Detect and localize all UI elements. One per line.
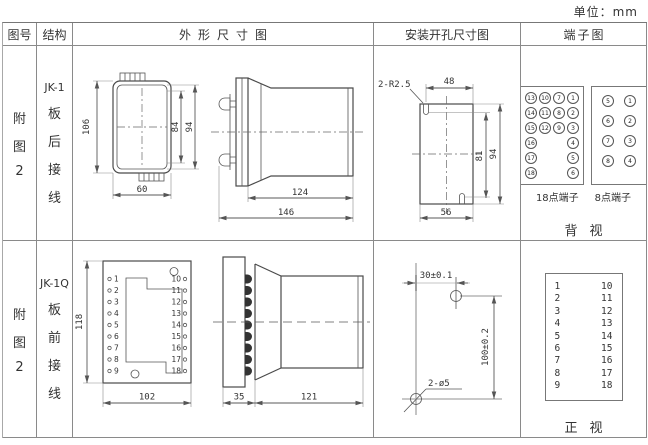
- dim-121: 121: [301, 393, 317, 403]
- svg-text:9: 9: [114, 367, 119, 376]
- svg-text:1: 1: [114, 275, 119, 284]
- dim-124: 124: [292, 188, 308, 198]
- hole-diameter-label: 2-ø5: [428, 379, 450, 389]
- terminal-pin: 7: [602, 135, 614, 147]
- row2-structure: JK-1Q 板 前 接 线: [37, 241, 73, 438]
- terminal-block-18pt: 13 10 7 1 14 11 8 2 15 12 9 3 16: [521, 86, 584, 185]
- fig-no-char: 2: [15, 164, 23, 179]
- label-18pt: 18点端子: [536, 189, 579, 204]
- top-terminal-block: [120, 73, 145, 81]
- terminal-table: 110 211 312 413 514 615 716 817 918: [545, 273, 623, 401]
- structure-char: 板: [48, 299, 61, 318]
- row2-terminal-cell: 110 211 312 413 514 615 716 817 918 正视: [521, 241, 647, 438]
- terminal-pin: 15: [525, 122, 537, 134]
- terminal-pin: 2: [567, 107, 579, 119]
- mounting-hole: [131, 370, 139, 378]
- structure-char: 接: [48, 355, 61, 374]
- terminal-pin: 10: [539, 92, 551, 104]
- bottom-terminal-block: [139, 173, 164, 181]
- header-fig-no: 图号: [3, 23, 37, 46]
- dim-102: 102: [139, 393, 155, 403]
- terminal-pin: 1: [624, 95, 636, 107]
- front-terminal-bumps: [245, 275, 252, 376]
- terminal-block-8pt: 5 1 6 2 7 3 8 4: [591, 86, 647, 185]
- slot-radius-label: 2-R2.5: [378, 80, 411, 90]
- terminal-pin: 12: [539, 122, 551, 134]
- jk1q-mounting-drawing: 30±0.1 100±0.2 2-ø5: [374, 241, 520, 437]
- jk1-outline-drawing: 106 84 94 60: [73, 46, 373, 240]
- structure-char: 前: [48, 327, 61, 346]
- fig-no-char: 附: [13, 304, 26, 323]
- header-terminal: 端子图: [521, 23, 647, 46]
- svg-text:15: 15: [171, 332, 181, 341]
- dim-94: 94: [185, 122, 195, 133]
- rear-view-label: 背视: [552, 220, 614, 239]
- terminal-pin: 3: [567, 122, 579, 134]
- top-slot: [424, 104, 429, 115]
- structure-char: 接: [48, 159, 61, 178]
- svg-text:16: 16: [171, 344, 181, 353]
- terminal-pin: 3: [624, 135, 636, 147]
- row1-structure: JK-1 板 后 接 线: [37, 46, 73, 241]
- svg-text:6: 6: [114, 332, 119, 341]
- terminal-pin: 14: [525, 107, 537, 119]
- svg-text:7: 7: [114, 344, 119, 353]
- jk1q-side-view: 35 121: [213, 257, 370, 407]
- fig-no-char: 图: [13, 136, 26, 155]
- row2-mounting-cell: 30±0.1 100±0.2 2-ø5: [374, 241, 521, 438]
- dim-106: 106: [82, 119, 92, 135]
- svg-text:2: 2: [114, 286, 119, 295]
- svg-text:12: 12: [171, 298, 181, 307]
- model-name: JK-1Q: [40, 277, 69, 290]
- svg-text:4: 4: [114, 309, 119, 318]
- svg-text:8: 8: [114, 355, 119, 364]
- svg-text:10: 10: [171, 275, 181, 284]
- bottom-slot: [460, 194, 465, 205]
- dim-94b: 94: [489, 149, 499, 160]
- row2-fig-no: 附 图 2: [3, 241, 37, 438]
- fig-no-char: 附: [13, 108, 26, 127]
- header-outline: 外形尺寸图: [73, 23, 374, 46]
- front-view-label: 正视: [552, 417, 614, 436]
- jk1q-outline-drawing: 1 2 3 4 5 6 7 8 9 10 11 12 13: [73, 241, 373, 437]
- dim-100: 100±0.2: [481, 328, 491, 366]
- structure-char: 板: [48, 103, 61, 122]
- terminal-pin: 1: [567, 92, 579, 104]
- terminal-pin: 6: [602, 115, 614, 127]
- dim-146: 146: [278, 208, 294, 218]
- dim-81: 81: [475, 151, 485, 162]
- jk1q-front-view: 1 2 3 4 5 6 7 8 9 10 11 12 13: [75, 261, 191, 407]
- dim-118: 118: [75, 314, 85, 330]
- svg-text:18: 18: [171, 367, 181, 376]
- dim-84: 84: [171, 122, 181, 133]
- svg-text:17: 17: [171, 355, 181, 364]
- structure-char: 后: [48, 131, 61, 150]
- spec-sheet-page: 单位：mm 图号 结构 外形尺寸图 安装开孔尺寸图 端子图 附 图 2 JK-1…: [0, 0, 648, 445]
- unit-label: 单位：mm: [574, 3, 638, 20]
- structure-char: 线: [48, 383, 61, 402]
- svg-text:14: 14: [171, 321, 181, 330]
- dim-60: 60: [137, 185, 148, 195]
- terminal-pin: 11: [539, 107, 551, 119]
- svg-text:5: 5: [114, 321, 119, 330]
- terminal-pin: 4: [567, 137, 579, 149]
- svg-text:13: 13: [171, 309, 181, 318]
- model-name: JK-1: [44, 81, 64, 94]
- fig-no-char: 图: [13, 332, 26, 351]
- terminal-pin: 2: [624, 115, 636, 127]
- terminal-pin: 5: [567, 152, 579, 164]
- dim-30: 30±0.1: [420, 271, 453, 281]
- row1-outline-cell: 106 84 94 60: [73, 46, 374, 241]
- spec-table: 图号 结构 外形尺寸图 安装开孔尺寸图 端子图 附 图 2 JK-1 板 后 接…: [2, 22, 647, 438]
- row1-fig-no: 附 图 2: [3, 46, 37, 241]
- terminal-pin: 8: [553, 107, 565, 119]
- front-terminals-left: 1 2 3 4 5 6 7 8 9: [108, 275, 119, 376]
- terminal-pin: 8: [602, 155, 614, 167]
- terminal-pin: 5: [602, 95, 614, 107]
- terminal-pin: 9: [553, 122, 565, 134]
- jk1-mounting-drawing: 2-R2.5 48 81 94 56: [374, 46, 520, 240]
- dim-48: 48: [444, 77, 455, 87]
- terminal-pin: 17: [525, 152, 537, 164]
- row1-mounting-cell: 2-R2.5 48 81 94 56: [374, 46, 521, 241]
- row1-terminal-cell: 13 10 7 1 14 11 8 2 15 12 9 3 16: [521, 46, 647, 241]
- terminal-pin: 4: [624, 155, 636, 167]
- header-mounting: 安装开孔尺寸图: [374, 23, 521, 46]
- terminal-pin: 18: [525, 167, 537, 179]
- terminal-pin: 16: [525, 137, 537, 149]
- svg-text:3: 3: [114, 298, 119, 307]
- header-structure: 结构: [37, 23, 73, 46]
- front-terminals-right: 10 11 12 13 14 15 16 17 18: [171, 275, 186, 376]
- structure-char: 线: [48, 187, 61, 206]
- terminal-pin: 6: [567, 167, 579, 179]
- row2-outline-cell: 1 2 3 4 5 6 7 8 9 10 11 12 13: [73, 241, 374, 438]
- label-8pt: 8点端子: [595, 189, 631, 204]
- dim-35: 35: [234, 393, 245, 403]
- terminal-pin: 7: [553, 92, 565, 104]
- fig-no-char: 2: [15, 360, 23, 375]
- svg-text:11: 11: [171, 286, 181, 295]
- terminal-pin: 13: [525, 92, 537, 104]
- dim-56: 56: [441, 208, 452, 218]
- jk1-front-view: 106 84 94 60: [82, 73, 199, 199]
- jk1-side-view: 124 146: [211, 78, 365, 222]
